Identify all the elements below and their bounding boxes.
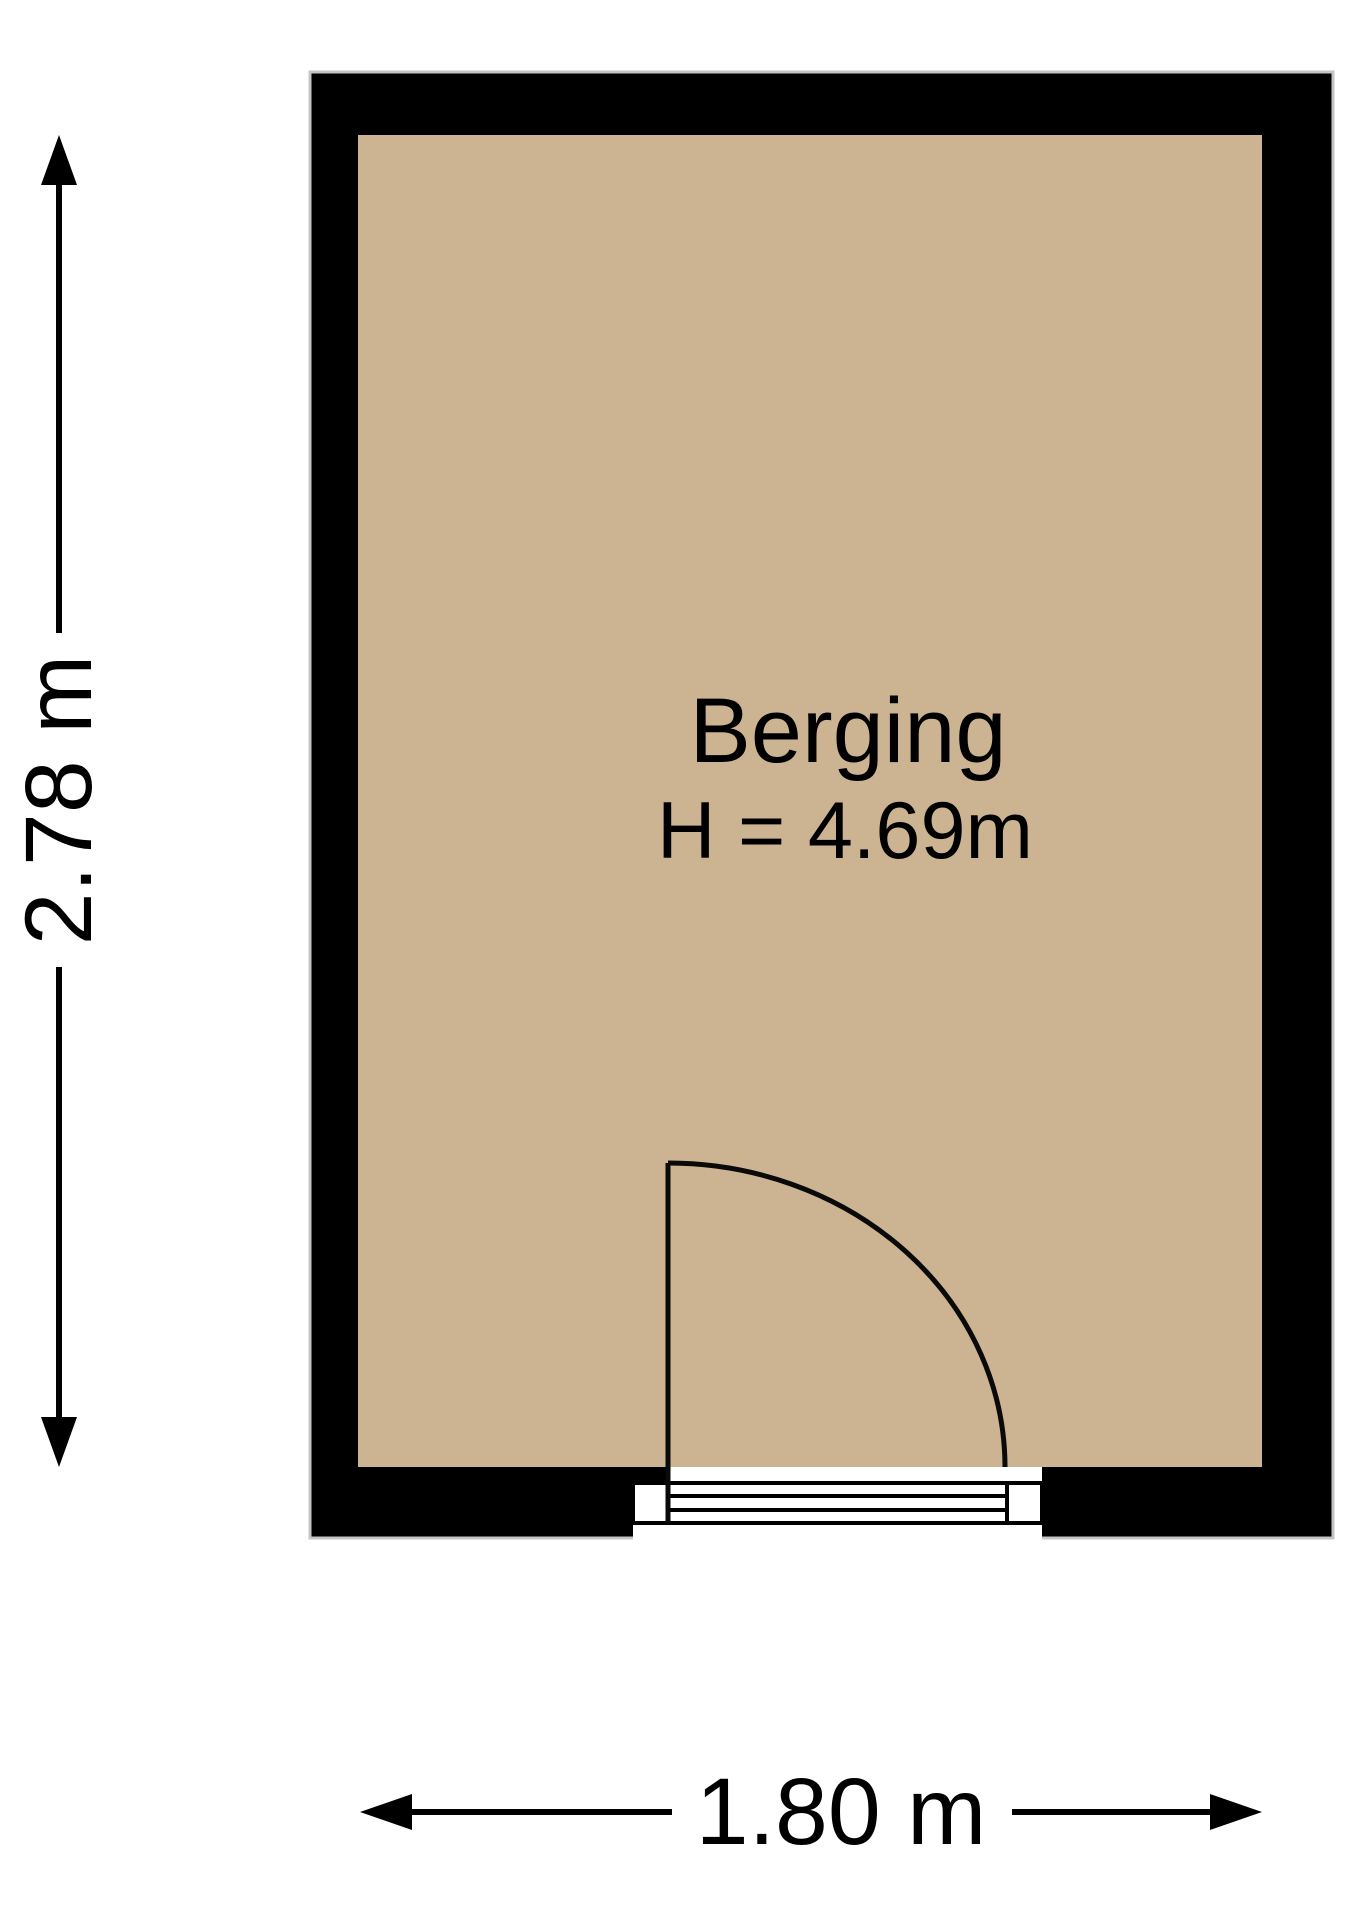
room-height-label: H = 4.69m	[657, 786, 1033, 876]
door-jamb-left	[633, 1483, 668, 1523]
arrow-right-icon	[1210, 1794, 1262, 1830]
vertical-dimension: 2.78 m	[6, 135, 112, 1467]
floorplan-page: Berging H = 4.69m 2.78 m 1.80 m	[0, 0, 1358, 1920]
door-jamb-right	[1007, 1483, 1042, 1523]
wall-tab	[633, 1467, 668, 1483]
vertical-dimension-label: 2.78 m	[6, 655, 112, 945]
arrow-down-icon	[41, 1417, 77, 1467]
horizontal-dimension-label: 1.80 m	[696, 1759, 986, 1865]
room-label: Berging	[689, 680, 1006, 782]
arrow-left-icon	[360, 1794, 412, 1830]
arrow-up-icon	[41, 135, 77, 185]
floorplan-canvas: Berging H = 4.69m 2.78 m 1.80 m	[0, 0, 1358, 1920]
door-opening	[633, 1467, 1042, 1545]
horizontal-dimension: 1.80 m	[360, 1759, 1262, 1865]
